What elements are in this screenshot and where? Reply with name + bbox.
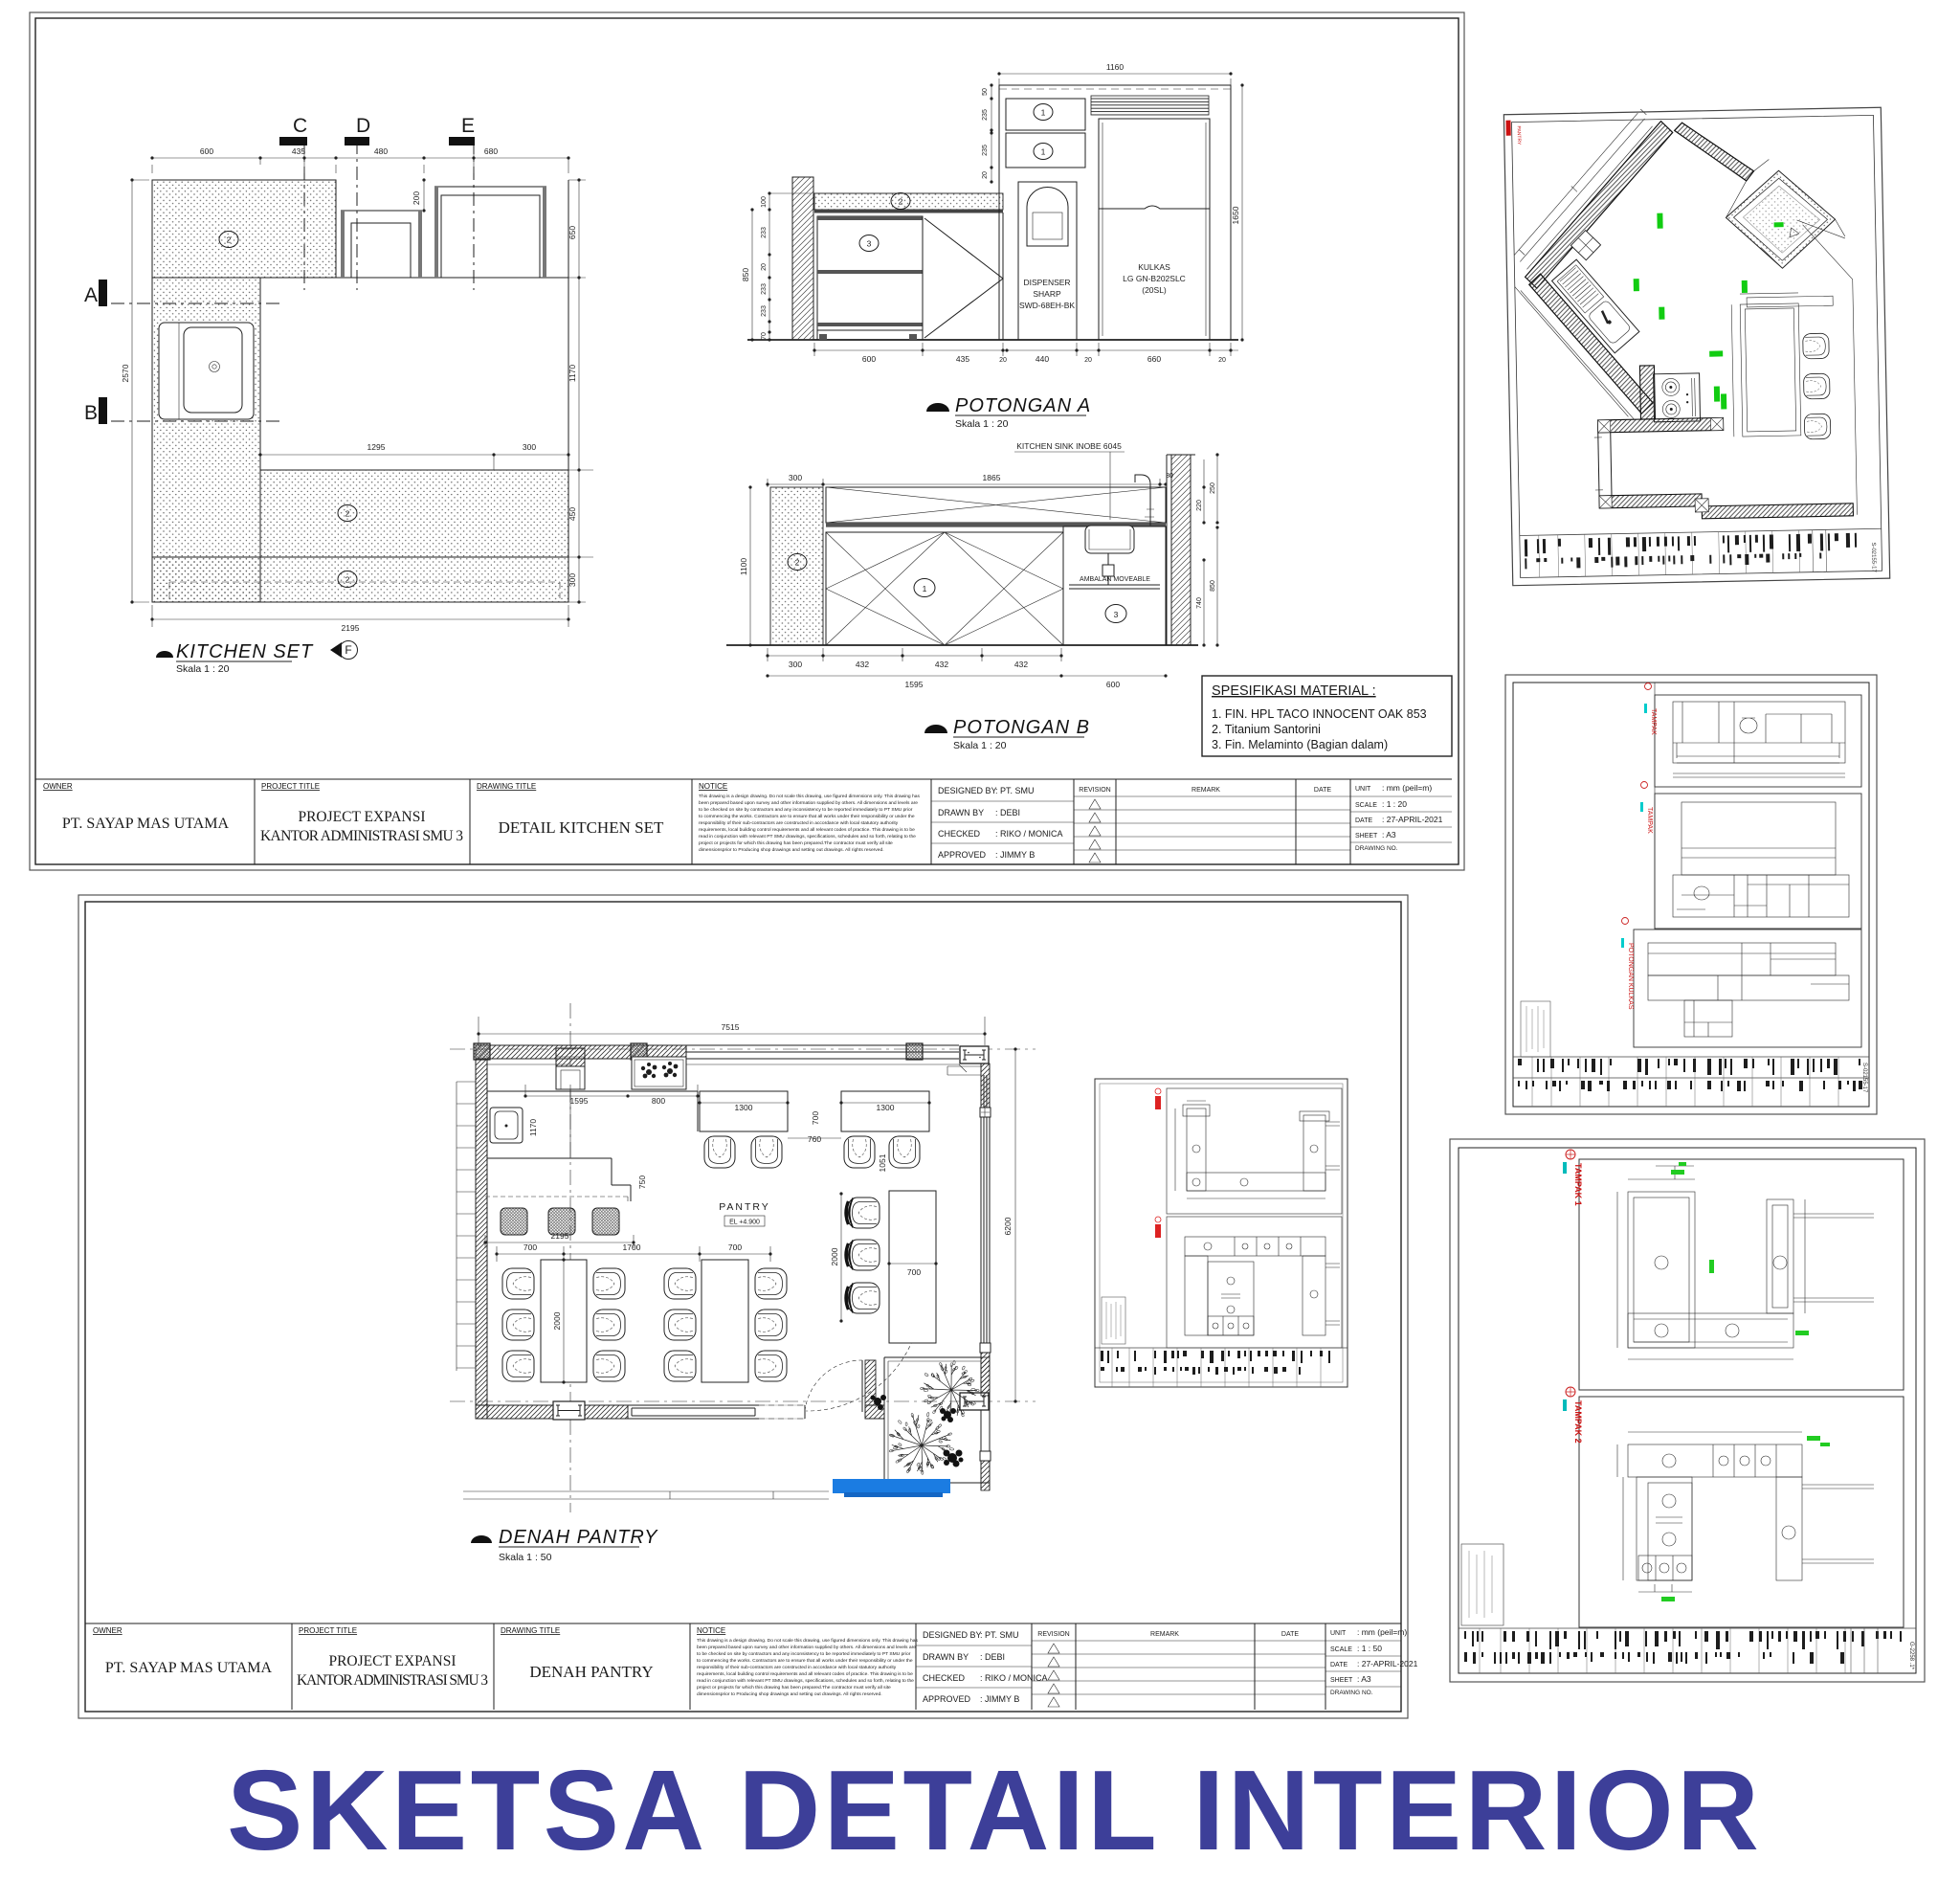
svg-text:(20SL): (20SL): [1142, 285, 1167, 295]
svg-text:2: 2: [345, 575, 350, 585]
svg-text:DETAIL KITCHEN SET: DETAIL KITCHEN SET: [499, 818, 664, 837]
svg-text:PROJECT TITLE: PROJECT TITLE: [261, 782, 320, 791]
svg-text:been prepared based upon surve: been prepared based upon survey and othe…: [697, 1645, 916, 1650]
svg-text:432: 432: [856, 660, 869, 669]
svg-text:30: 30: [1166, 473, 1173, 480]
svg-text:SCALE: SCALE: [1330, 1646, 1352, 1653]
svg-text:dimensionsprior to Producing s: dimensionsprior to Producing shop drawin…: [697, 1691, 882, 1697]
svg-text:800: 800: [652, 1096, 665, 1106]
svg-text:300: 300: [789, 473, 802, 482]
svg-text:REVISION: REVISION: [1079, 787, 1110, 794]
svg-text:B: B: [84, 402, 98, 424]
svg-text:235: 235: [982, 145, 989, 156]
svg-text:TAMPAK 1: TAMPAK 1: [1573, 1163, 1583, 1206]
svg-text:read in conjunction with relev: read in conjunction with relevant PT SMU…: [697, 1678, 914, 1684]
svg-text:2: 2: [345, 509, 350, 519]
svg-text:233: 233: [761, 227, 768, 238]
svg-text:Skala 1 : 20: Skala 1 : 20: [176, 663, 230, 675]
svg-text:100: 100: [761, 196, 768, 208]
svg-text:70: 70: [761, 332, 768, 340]
svg-text:SPESIFIKASI MATERIAL :: SPESIFIKASI MATERIAL :: [1212, 683, 1376, 699]
svg-text:Skala 1 : 20: Skala 1 : 20: [953, 740, 1007, 751]
svg-text:1170: 1170: [568, 365, 577, 383]
svg-text:SKETSA DETAIL INTERIOR: SKETSA DETAIL INTERIOR: [227, 1747, 1762, 1874]
svg-text:to commencing the works. Contr: to commencing the works. Contractors are…: [697, 1658, 913, 1664]
svg-text:EL +4.900: EL +4.900: [729, 1220, 760, 1226]
svg-text:PT. SAYAP MAS UTAMA: PT. SAYAP MAS UTAMA: [62, 816, 230, 832]
svg-text:480: 480: [374, 146, 388, 156]
svg-text:DISPENSER: DISPENSER: [1023, 278, 1070, 287]
svg-text:600: 600: [862, 354, 876, 364]
svg-text:: mm (peil=m): : mm (peil=m): [1357, 1627, 1407, 1637]
svg-text:been prepared based upon surve: been prepared based upon survey and othe…: [699, 800, 918, 806]
svg-text:REMARK: REMARK: [1192, 787, 1220, 794]
svg-text:3. Fin. Melaminto (Bagian dala: 3. Fin. Melaminto (Bagian dalam): [1212, 738, 1388, 751]
svg-text:435: 435: [956, 354, 969, 364]
svg-text:2: 2: [227, 235, 232, 245]
svg-text:read in conjunction with relev: read in conjunction with relevant PT SMU…: [699, 834, 916, 840]
svg-text:235: 235: [982, 109, 989, 121]
svg-text:233: 233: [761, 283, 768, 295]
svg-text:SHARP: SHARP: [1033, 289, 1061, 299]
svg-text:1: 1: [1041, 108, 1046, 118]
svg-text:2195: 2195: [342, 623, 360, 633]
svg-text:432: 432: [935, 660, 948, 669]
svg-text:700: 700: [811, 1111, 820, 1125]
svg-text:20: 20: [982, 171, 989, 179]
svg-text:S-02155-17: S-02155-17: [1870, 542, 1877, 572]
svg-text:1595: 1595: [570, 1096, 589, 1106]
svg-text:CHECKED: CHECKED: [938, 829, 981, 839]
svg-text:DATE: DATE: [1281, 1631, 1299, 1638]
svg-text:20: 20: [761, 263, 768, 271]
svg-text:TAMPAK: TAMPAK: [1646, 807, 1653, 834]
svg-text:: DEBI: : DEBI: [980, 1652, 1005, 1662]
svg-text:POTONGAN A: POTONGAN A: [955, 395, 1091, 416]
svg-text:F: F: [345, 643, 351, 657]
svg-text:PROJECT TITLE: PROJECT TITLE: [299, 1626, 357, 1635]
svg-text:G-2258 .1*: G-2258 .1*: [1908, 1642, 1914, 1670]
svg-text:A: A: [84, 284, 98, 306]
svg-text:to commencing the works. Contr: to commencing the works. Contractors are…: [699, 814, 915, 819]
svg-text:233: 233: [761, 305, 768, 317]
svg-text:1. FIN. HPL TACO INNOCENT OAK: 1. FIN. HPL TACO INNOCENT OAK 853: [1212, 707, 1427, 721]
svg-text:1051: 1051: [878, 1153, 887, 1172]
svg-text:2000: 2000: [830, 1247, 839, 1265]
svg-text:SHEET: SHEET: [1355, 833, 1378, 840]
svg-text:TAMPAK 2: TAMPAK 2: [1573, 1400, 1583, 1444]
svg-text:650: 650: [568, 226, 577, 239]
svg-text:: 27-APRIL-2021: : 27-APRIL-2021: [1382, 815, 1443, 824]
svg-text:300: 300: [523, 442, 536, 452]
svg-text:600: 600: [200, 146, 213, 156]
svg-text:D: D: [356, 115, 370, 137]
svg-text:DESIGNED BY: DESIGNED BY: [938, 786, 997, 795]
svg-text:UNIT: UNIT: [1330, 1630, 1347, 1637]
svg-text:PANTRY: PANTRY: [1516, 125, 1522, 146]
svg-text:POTONGAN KULKAS: POTONGAN KULKAS: [1627, 943, 1634, 1010]
svg-text:C: C: [293, 115, 307, 137]
svg-text:UNIT: UNIT: [1355, 786, 1371, 793]
svg-text:760: 760: [808, 1134, 821, 1144]
svg-text:REMARK: REMARK: [1150, 1631, 1179, 1638]
svg-text:OWNER: OWNER: [43, 782, 73, 791]
svg-text:: PT. SMU: : PT. SMU: [980, 1630, 1019, 1640]
svg-text:1160: 1160: [1106, 62, 1125, 72]
svg-text:KANTOR ADMINISTRASI SMU 3: KANTOR ADMINISTRASI SMU 3: [297, 1672, 488, 1689]
svg-text:project or projects for which: project or projects for which this drawi…: [699, 840, 893, 846]
svg-text:6200: 6200: [1003, 1217, 1013, 1235]
svg-text:432: 432: [1014, 660, 1028, 669]
svg-text:CHECKED: CHECKED: [923, 1673, 966, 1683]
svg-text:KITCHEN SINK INOBE 6045: KITCHEN SINK INOBE 6045: [1016, 441, 1122, 451]
svg-text:POTONGAN B: POTONGAN B: [953, 717, 1090, 738]
svg-text:KITCHEN SET: KITCHEN SET: [176, 641, 314, 662]
svg-text:: 1 : 20: : 1 : 20: [1382, 799, 1407, 809]
svg-text:1700: 1700: [623, 1243, 641, 1252]
svg-text:440: 440: [1036, 354, 1049, 364]
svg-text:: A3: : A3: [1357, 1674, 1371, 1684]
svg-text:DRAWING NO.: DRAWING NO.: [1330, 1690, 1373, 1696]
svg-text:2: 2: [899, 197, 903, 207]
svg-text:responsibility of their sub-co: responsibility of their sub-contractors …: [699, 820, 899, 826]
svg-text:660: 660: [1147, 354, 1161, 364]
svg-text:This drawing is a design drawi: This drawing is a design drawing. Do not…: [699, 794, 920, 799]
svg-text:APPROVED: APPROVED: [938, 850, 987, 860]
svg-text:: mm (peil=m): : mm (peil=m): [1382, 783, 1432, 793]
svg-text:1170: 1170: [528, 1119, 538, 1137]
svg-text:: DEBI: : DEBI: [995, 808, 1020, 817]
svg-text:750: 750: [637, 1175, 647, 1189]
svg-text:DATE: DATE: [1355, 817, 1372, 824]
svg-text:responsibility of their sub-co: responsibility of their sub-contractors …: [697, 1665, 897, 1670]
svg-text:: JIMMY B: : JIMMY B: [980, 1694, 1019, 1704]
svg-text:DESIGNED BY: DESIGNED BY: [923, 1630, 982, 1640]
svg-text:700: 700: [907, 1267, 921, 1277]
svg-text:REVISION: REVISION: [1037, 1631, 1069, 1638]
svg-text:20: 20: [1084, 357, 1092, 364]
svg-text:SHEET: SHEET: [1330, 1677, 1353, 1684]
svg-text:NOTICE: NOTICE: [699, 782, 727, 791]
svg-text:450: 450: [568, 507, 577, 521]
svg-text:DENAH PANTRY: DENAH PANTRY: [529, 1663, 653, 1681]
svg-text:This drawing is a design drawi: This drawing is a design drawing. Do not…: [697, 1638, 918, 1644]
svg-text:DATE: DATE: [1314, 787, 1331, 794]
svg-text:300: 300: [568, 573, 577, 587]
svg-text:DRAWN BY: DRAWN BY: [923, 1652, 969, 1662]
svg-text:: RIKO / MONICA: : RIKO / MONICA: [980, 1673, 1048, 1683]
svg-text:PT. SAYAP MAS UTAMA: PT. SAYAP MAS UTAMA: [105, 1660, 273, 1676]
svg-text:: 1 : 50: : 1 : 50: [1357, 1644, 1382, 1653]
svg-text:SCALE: SCALE: [1355, 802, 1377, 809]
svg-text:1: 1: [1041, 147, 1046, 157]
svg-text:1595: 1595: [905, 680, 924, 689]
svg-text:dimensionsprior to Producing s: dimensionsprior to Producing shop drawin…: [699, 847, 884, 853]
svg-text:: RIKO / MONICA: : RIKO / MONICA: [995, 829, 1063, 839]
svg-text:50: 50: [982, 88, 989, 96]
svg-text:DRAWN BY: DRAWN BY: [938, 808, 984, 817]
svg-text:DENAH PANTRY: DENAH PANTRY: [499, 1527, 658, 1548]
svg-text:1295: 1295: [367, 442, 386, 452]
svg-text:200: 200: [412, 191, 421, 205]
svg-text:requirements, local building c: requirements, local building control req…: [699, 827, 915, 833]
svg-text:1865: 1865: [983, 473, 1001, 482]
svg-text:PROJECT EXPANSI: PROJECT EXPANSI: [298, 809, 425, 825]
svg-text:20: 20: [1218, 357, 1226, 364]
svg-text:2000: 2000: [552, 1311, 562, 1330]
svg-text:1300: 1300: [877, 1103, 895, 1112]
svg-text:to be checked on site by contr: to be checked on site by contractors and…: [699, 807, 913, 813]
svg-text:DRAWING TITLE: DRAWING TITLE: [477, 782, 536, 791]
svg-text:NOTICE: NOTICE: [697, 1626, 725, 1635]
svg-text:APPROVED: APPROVED: [923, 1694, 971, 1704]
svg-text:250: 250: [1210, 482, 1216, 494]
svg-text:1300: 1300: [735, 1103, 753, 1112]
svg-text:DRAWING NO.: DRAWING NO.: [1355, 845, 1398, 852]
svg-text:PROJECT EXPANSI: PROJECT EXPANSI: [328, 1653, 456, 1669]
svg-text:700: 700: [523, 1243, 537, 1252]
svg-text:1100: 1100: [739, 558, 748, 576]
svg-text:300: 300: [789, 660, 802, 669]
svg-text:680: 680: [484, 146, 498, 156]
svg-text:KULKAS: KULKAS: [1138, 262, 1170, 272]
svg-text:435: 435: [292, 146, 305, 156]
svg-text:DATE: DATE: [1330, 1662, 1347, 1668]
svg-text:: JIMMY B: : JIMMY B: [995, 850, 1035, 860]
svg-text:DRAWING TITLE: DRAWING TITLE: [501, 1626, 560, 1635]
svg-text:850: 850: [741, 268, 750, 281]
svg-text:1: 1: [923, 584, 927, 593]
svg-text:to be checked on site by contr: to be checked on site by contractors and…: [697, 1651, 911, 1657]
svg-text:: A3: : A3: [1382, 830, 1396, 840]
svg-text:3: 3: [867, 239, 872, 249]
svg-text:600: 600: [1106, 680, 1120, 689]
svg-text:E: E: [461, 115, 475, 137]
svg-text:requirements, local building c: requirements, local building control req…: [697, 1671, 913, 1677]
svg-text:S-02155-17: S-02155-17: [1861, 1063, 1867, 1093]
svg-text:AMBALAN MOVEABLE: AMBALAN MOVEABLE: [1080, 576, 1150, 583]
svg-text:2570: 2570: [121, 364, 130, 382]
svg-text:700: 700: [728, 1243, 742, 1252]
svg-text:1650: 1650: [1231, 206, 1240, 224]
svg-text:740: 740: [1196, 597, 1203, 609]
svg-text:OWNER: OWNER: [93, 1626, 122, 1635]
svg-text:20: 20: [999, 357, 1007, 364]
svg-text:220: 220: [1196, 500, 1203, 511]
svg-text:: 27-APRIL-2021: : 27-APRIL-2021: [1357, 1659, 1418, 1668]
svg-text:2. Titanium Santorini: 2. Titanium Santorini: [1212, 723, 1321, 736]
svg-text:Skala 1 : 50: Skala 1 : 50: [499, 1552, 552, 1563]
svg-text:LG GN-B202SLC: LG GN-B202SLC: [1123, 274, 1186, 283]
svg-text:KANTOR ADMINISTRASI SMU 3: KANTOR ADMINISTRASI SMU 3: [260, 828, 463, 844]
svg-text:PANTRY: PANTRY: [719, 1201, 770, 1213]
svg-text:3: 3: [1114, 610, 1119, 619]
svg-text:SWD-68EH-BK: SWD-68EH-BK: [1019, 301, 1075, 310]
svg-text:: PT. SMU: : PT. SMU: [995, 786, 1035, 795]
svg-text:project or projects for which: project or projects for which this drawi…: [697, 1685, 891, 1690]
svg-text:2: 2: [795, 558, 800, 568]
svg-text:850: 850: [1210, 580, 1216, 592]
svg-text:TAMPAK: TAMPAK: [1650, 708, 1657, 735]
svg-text:7515: 7515: [722, 1022, 740, 1032]
svg-text:Skala 1 : 20: Skala 1 : 20: [955, 418, 1009, 430]
